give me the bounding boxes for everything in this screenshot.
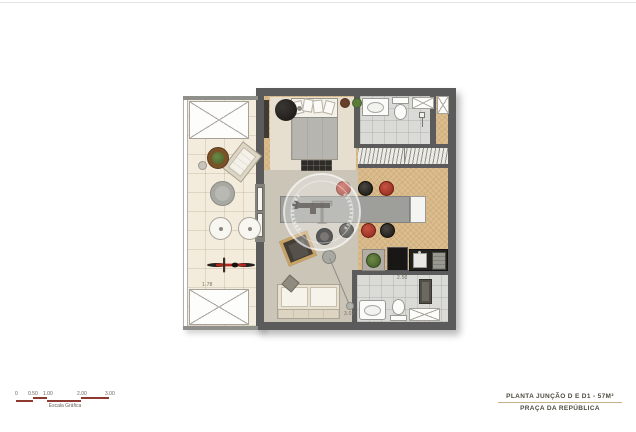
scale-bar-segment bbox=[16, 400, 33, 402]
balcony-rail-bottom bbox=[183, 326, 258, 330]
bathroom1-sink bbox=[362, 98, 389, 116]
balcony-planter-top bbox=[189, 101, 249, 139]
balcony-round-table bbox=[209, 217, 232, 240]
dimension-label-balcony: 1.78 bbox=[202, 283, 213, 288]
plan-title: PLANTA JUNÇÃO D E D1 - 57M² bbox=[498, 393, 622, 400]
bathroom1-toilet-tank bbox=[392, 97, 409, 104]
floor-plan-page: T 1.78 3.02 2.50 0 0.50 1.00 2.00 3.00 E… bbox=[0, 0, 636, 432]
bath-mat bbox=[419, 279, 432, 304]
balcony-glass-rail bbox=[183, 96, 188, 330]
shelf-plant bbox=[352, 98, 362, 108]
title-rule bbox=[498, 402, 622, 403]
closet bbox=[358, 144, 450, 168]
floor-plan: T 1.78 3.02 2.50 bbox=[0, 0, 636, 432]
kitchen-oven bbox=[387, 247, 408, 271]
table-center-dot bbox=[248, 227, 252, 231]
dimension-label-bathroom: 2.50 bbox=[397, 276, 408, 281]
bicycle-icon bbox=[204, 256, 258, 274]
balcony-plant bbox=[212, 152, 224, 164]
dimension-label-living: 3.02 bbox=[344, 312, 355, 317]
scale-bar-segment bbox=[81, 397, 109, 399]
scale-bar-segment bbox=[33, 397, 47, 399]
ledge-box bbox=[437, 96, 449, 114]
bathroom1-shower-shelf bbox=[412, 97, 434, 109]
kitchen-faucet bbox=[418, 251, 421, 254]
bedroom-door-leaf bbox=[264, 100, 269, 138]
bed-duvet bbox=[292, 117, 337, 159]
shelf-plant-pot bbox=[340, 98, 350, 108]
table-center-dot bbox=[219, 227, 223, 231]
balcony-round-table bbox=[238, 217, 261, 240]
bathroom2-sink bbox=[359, 300, 386, 320]
bathroom2-toilet-tank bbox=[390, 315, 407, 321]
wall-bottom bbox=[256, 322, 456, 330]
scale-bar-segment bbox=[47, 400, 81, 402]
floor-lamp-shade bbox=[322, 250, 336, 264]
kitchen-counter bbox=[409, 249, 448, 271]
closet-divider bbox=[404, 148, 405, 164]
stool-red bbox=[361, 223, 376, 238]
round-chair-dot bbox=[297, 106, 302, 111]
scale-caption: Escala Gráfica bbox=[30, 404, 100, 409]
wall-left-lower bbox=[256, 242, 264, 328]
balcony-pouf-ring bbox=[215, 186, 230, 201]
bathroom2-toilet-bowl bbox=[392, 299, 405, 315]
kitchen-sink bbox=[413, 253, 427, 268]
stool-red bbox=[379, 181, 394, 196]
floor-lamp-base bbox=[346, 302, 354, 310]
scale-tick-label: 0 bbox=[15, 392, 18, 397]
bathroom1-sink-basin bbox=[367, 102, 384, 113]
bathroom2-shower-box bbox=[409, 308, 440, 321]
sofa-cushion bbox=[310, 287, 337, 307]
dining-table-end bbox=[410, 196, 426, 223]
wall-right bbox=[448, 94, 456, 330]
kitchen-plant bbox=[366, 253, 381, 268]
balcony-planter-bottom bbox=[189, 289, 249, 325]
shower-hose bbox=[422, 118, 423, 127]
balcony-rail-top bbox=[183, 96, 258, 100]
title-block: PLANTA JUNÇÃO D E D1 - 57M² PRAÇA DA REP… bbox=[498, 393, 622, 412]
plan-subtitle: PRAÇA DA REPÚBLICA bbox=[498, 405, 622, 412]
round-chair bbox=[275, 99, 297, 121]
scale-bar: 0 0.50 1.00 2.00 3.00 Escala Gráfica bbox=[0, 385, 130, 415]
balcony-small-stool bbox=[198, 161, 207, 170]
tv-dresser bbox=[301, 160, 332, 171]
bathroom1-toilet-bowl bbox=[394, 104, 407, 120]
stool-black bbox=[380, 223, 395, 238]
bathroom2-sink-basin bbox=[364, 305, 381, 316]
balcony-plant-pot bbox=[207, 147, 229, 169]
sofa-cushion bbox=[281, 287, 308, 307]
bath-mat-stripe bbox=[422, 282, 429, 301]
kitchen-fridge bbox=[432, 252, 446, 270]
wall-left-upper bbox=[256, 94, 264, 186]
sliding-door-panel bbox=[257, 187, 263, 211]
balcony-pouf bbox=[210, 181, 235, 206]
watermark-monogram: T bbox=[311, 194, 333, 232]
sofa-back bbox=[278, 309, 339, 318]
developer-watermark: T bbox=[282, 172, 362, 252]
